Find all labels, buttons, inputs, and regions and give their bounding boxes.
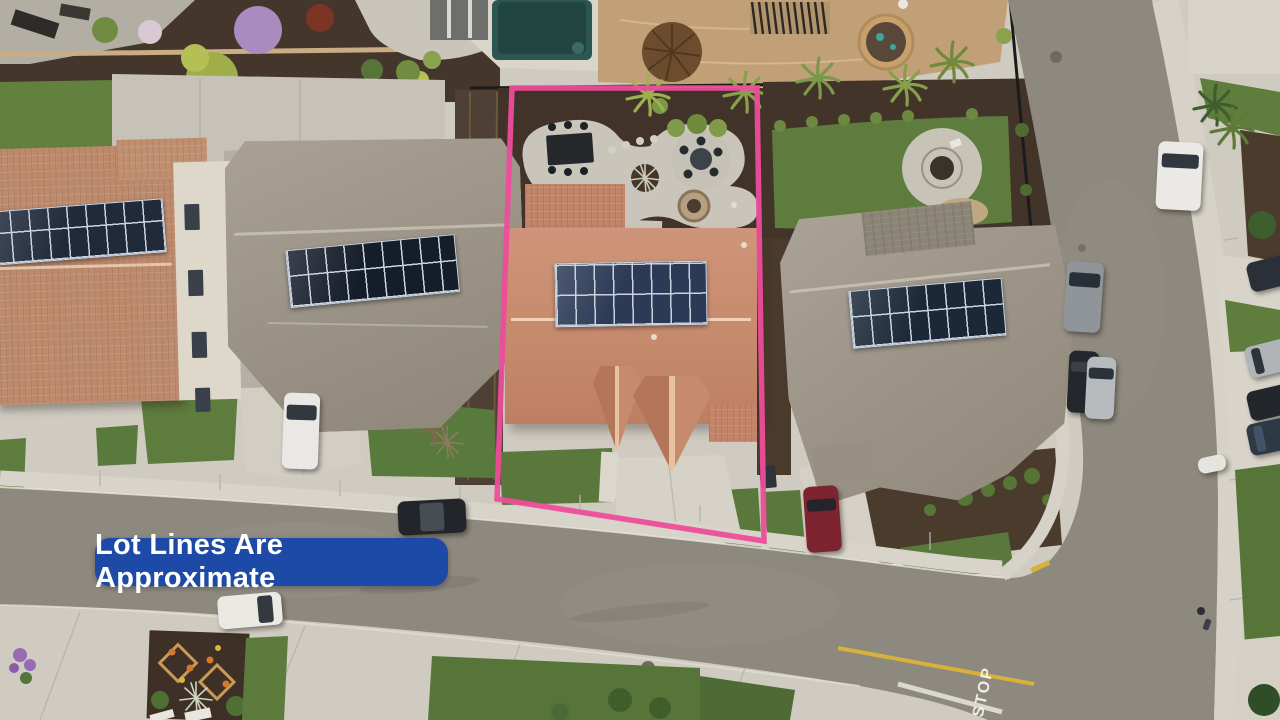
text-overlays: Lot Lines Are Approximate STOP [0, 0, 1280, 720]
aerial-photo: Lot Lines Are Approximate STOP [0, 0, 1280, 720]
lot-lines-badge: Lot Lines Are Approximate [95, 538, 448, 586]
stop-road-marking: STOP [967, 655, 1002, 720]
